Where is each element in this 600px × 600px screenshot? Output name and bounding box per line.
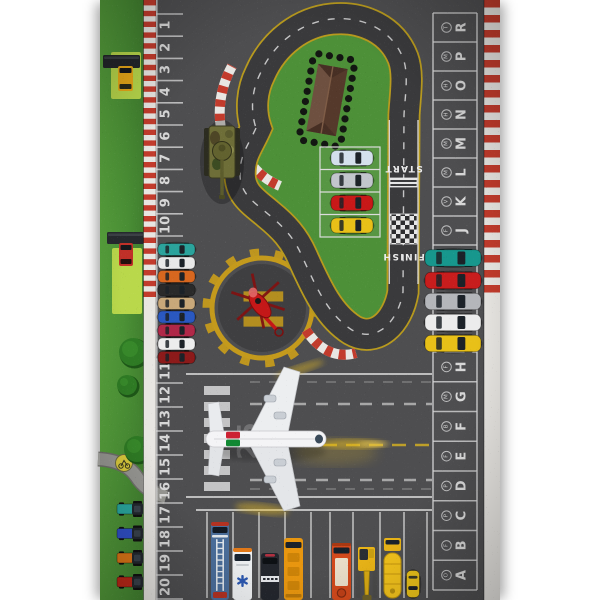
play-mat-photo: 1234567891011121314151617181920RTPMOHNHM… [0, 0, 600, 600]
vignette [100, 0, 500, 600]
mat: 1234567891011121314151617181920RTPMOHNHM… [98, 0, 500, 600]
texture-layer [100, 0, 500, 600]
play-mat-scene: 1234567891011121314151617181920RTPMOHNHM… [0, 0, 600, 600]
